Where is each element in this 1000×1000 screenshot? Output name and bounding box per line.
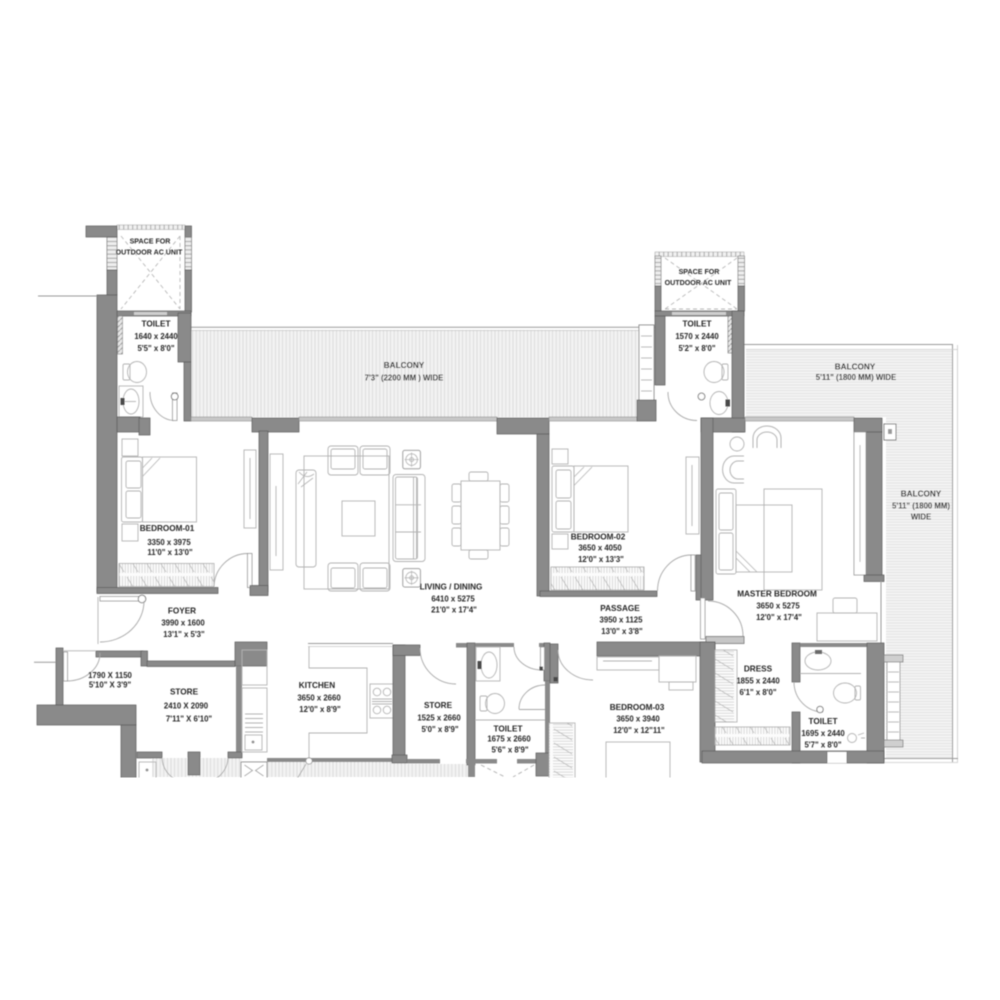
svg-text:1855 x 2440: 1855 x 2440 [736,677,780,686]
svg-text:5'7" x 8'0": 5'7" x 8'0" [804,741,841,750]
svg-text:2410 X 2090: 2410 X 2090 [164,702,209,711]
svg-text:5'10" X 3'9": 5'10" X 3'9" [89,681,132,690]
svg-text:3650 x 5275: 3650 x 5275 [756,602,800,611]
svg-text:LIVING / DINING: LIVING / DINING [420,583,483,592]
svg-text:13'1" x 5'3": 13'1" x 5'3" [163,630,205,639]
svg-text:BEDROOM-01: BEDROOM-01 [140,524,195,533]
svg-text:5'0" x 8'9": 5'0" x 8'9" [421,725,458,734]
svg-text:BEDROOM-03: BEDROOM-03 [610,703,665,712]
svg-text:TOILET: TOILET [494,725,523,734]
svg-text:SPACE FOR: SPACE FOR [679,268,720,276]
svg-text:OUTDOOR AC UNIT: OUTDOOR AC UNIT [116,249,183,257]
svg-text:13'0" x 3'8": 13'0" x 3'8" [601,627,643,636]
svg-text:KITCHEN: KITCHEN [299,681,335,690]
svg-text:STORE: STORE [424,701,453,710]
svg-text:7'11" X 6'10": 7'11" X 6'10" [166,715,213,724]
svg-text:6410 x 5275: 6410 x 5275 [431,595,475,604]
svg-text:5'11" (1800 MM) WIDE: 5'11" (1800 MM) WIDE [816,373,897,382]
svg-text:FOYER: FOYER [168,607,196,616]
svg-text:BEDROOM-02: BEDROOM-02 [571,533,626,542]
svg-text:BALCONY: BALCONY [835,363,876,372]
svg-text:1525 x 2660: 1525 x 2660 [417,714,461,723]
svg-text:3650 x 2660: 3650 x 2660 [297,694,341,703]
svg-text:TOILET: TOILET [809,717,838,726]
svg-text:5'2" x 8'0": 5'2" x 8'0" [678,344,715,353]
svg-text:12'0" x 12"11": 12'0" x 12"11" [613,726,665,735]
svg-text:11'0" x 13'0": 11'0" x 13'0" [147,548,193,557]
svg-text:DRESS: DRESS [744,665,773,674]
svg-text:5'6" x 8'9": 5'6" x 8'9" [491,746,528,755]
svg-text:1640 x 2440: 1640 x 2440 [134,332,178,341]
svg-text:1675 x 2660: 1675 x 2660 [487,735,531,744]
svg-text:5'11" (1800 MM): 5'11" (1800 MM) [892,502,950,511]
svg-text:BALCONY: BALCONY [901,490,942,499]
svg-text:5'5" x 8'0": 5'5" x 8'0" [137,344,174,353]
svg-text:6'1" x 8'0": 6'1" x 8'0" [739,688,776,697]
svg-text:OUTDOOR AC UNIT: OUTDOOR AC UNIT [665,279,732,287]
svg-text:7'3" (2200 MM ) WIDE: 7'3" (2200 MM ) WIDE [365,374,444,383]
svg-text:3950 x 1125: 3950 x 1125 [600,616,644,625]
svg-text:BALCONY: BALCONY [384,361,425,370]
svg-text:STORE: STORE [170,688,199,697]
svg-text:3650 x 3940: 3650 x 3940 [616,715,660,724]
svg-text:21'0" x 17'4": 21'0" x 17'4" [431,606,477,615]
svg-text:TOILET: TOILET [683,320,712,329]
svg-text:TOILET: TOILET [142,320,171,329]
svg-text:SPACE FOR: SPACE FOR [130,238,171,246]
svg-text:3350 x 3975: 3350 x 3975 [147,538,191,547]
svg-text:12'0" x 13'3": 12'0" x 13'3" [578,555,624,564]
svg-text:1695 x 2440: 1695 x 2440 [801,729,845,738]
svg-text:PASSAGE: PASSAGE [600,604,640,613]
svg-text:3650 x 4050: 3650 x 4050 [578,544,622,553]
svg-text:12'0" x 8'9": 12'0" x 8'9" [299,705,341,714]
svg-text:1790 X 1150: 1790 X 1150 [88,671,132,680]
svg-text:3990 x 1600: 3990 x 1600 [161,619,205,628]
svg-text:WIDE: WIDE [911,513,931,522]
svg-text:12'0" x 17'4": 12'0" x 17'4" [756,613,802,622]
svg-text:MASTER BEDROOM: MASTER BEDROOM [737,590,817,599]
svg-text:1570 x 2440: 1570 x 2440 [675,332,719,341]
